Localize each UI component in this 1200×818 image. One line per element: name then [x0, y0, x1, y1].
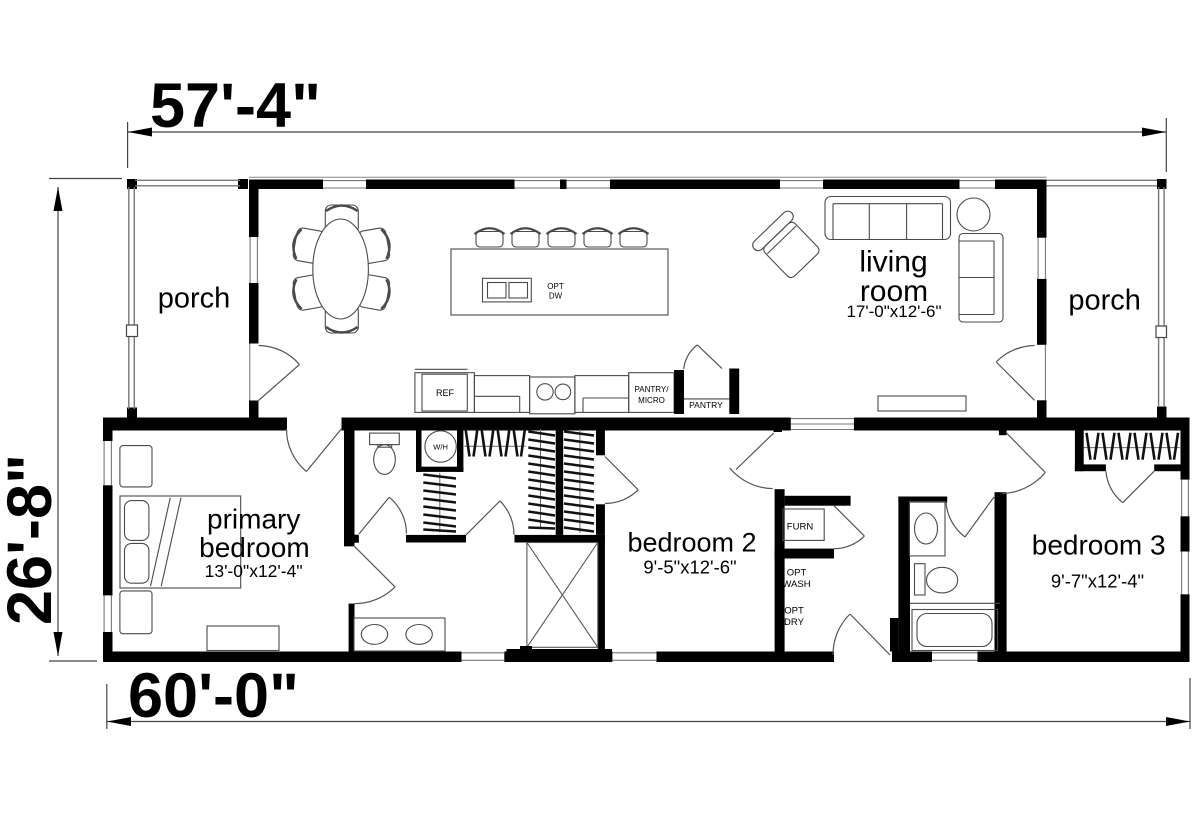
svg-text:MICRO: MICRO [638, 396, 665, 405]
svg-text:OPT: OPT [787, 568, 807, 579]
svg-text:60'-0": 60'-0" [128, 661, 299, 731]
svg-text:FURN: FURN [787, 522, 814, 533]
svg-text:OPT: OPT [784, 606, 804, 617]
svg-text:WASH: WASH [782, 579, 810, 590]
svg-text:porch: porch [158, 283, 231, 315]
svg-text:DW: DW [549, 292, 563, 301]
svg-text:PANTRY/: PANTRY/ [635, 385, 670, 394]
svg-text:9'-5"x12'-6": 9'-5"x12'-6" [643, 557, 736, 578]
svg-text:W/H: W/H [433, 443, 448, 452]
svg-text:primary: primary [207, 504, 300, 535]
svg-text:bedroom 2: bedroom 2 [627, 528, 756, 558]
svg-text:57'-4": 57'-4" [150, 71, 321, 141]
svg-text:PANTRY: PANTRY [689, 400, 723, 410]
svg-text:porch: porch [1068, 285, 1141, 317]
svg-text:REF: REF [436, 388, 455, 398]
svg-text:13'-0"x12'-4": 13'-0"x12'-4" [205, 561, 303, 581]
svg-text:living: living [859, 246, 927, 279]
svg-text:OPT: OPT [547, 282, 564, 291]
svg-text:9'-7"x12'-4": 9'-7"x12'-4" [1051, 571, 1144, 592]
svg-text:DRY: DRY [784, 617, 805, 628]
svg-text:bedroom 3: bedroom 3 [1032, 530, 1166, 561]
svg-text:26'-8": 26'-8" [0, 454, 65, 625]
svg-text:bedroom: bedroom [199, 532, 310, 563]
svg-text:17'-0"x12'-6": 17'-0"x12'-6" [846, 302, 941, 321]
